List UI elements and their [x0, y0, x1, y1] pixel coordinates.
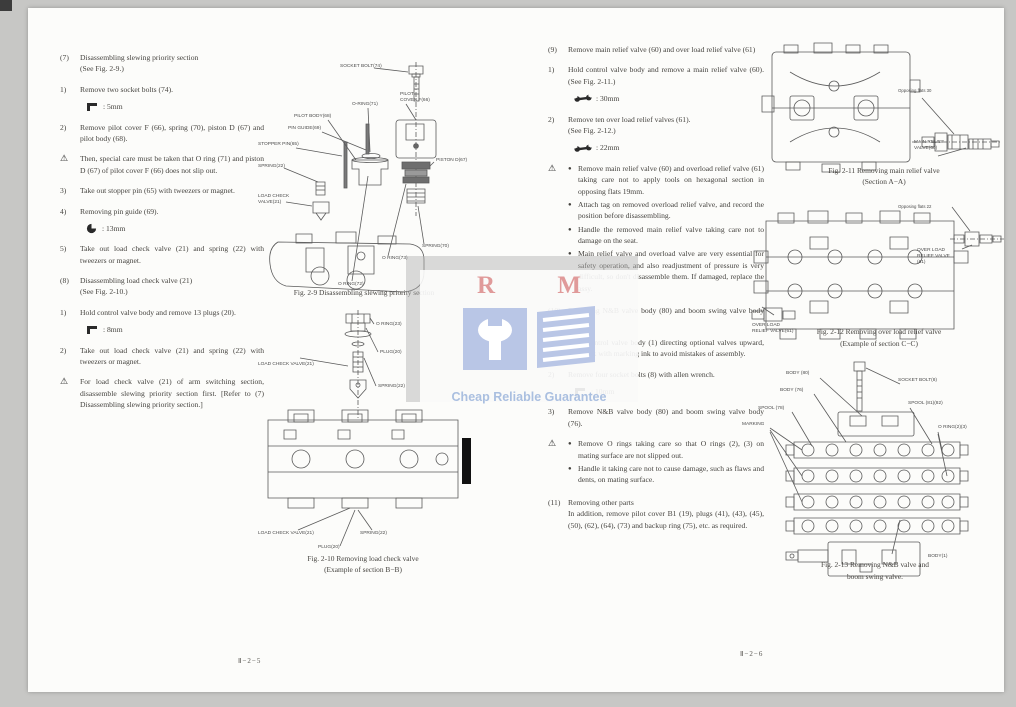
step-item: 2)Remove ten over load relief valves (61…: [548, 114, 764, 137]
tool-size: : 30mm: [596, 93, 764, 104]
item-text: Take out load check valve (21) and sprin…: [80, 345, 264, 368]
manual-page-spread: (7)Disassembling slewing priority sectio…: [28, 8, 1004, 692]
part-label: BODY (76): [780, 388, 803, 394]
item-text: Removing pin guide (69).: [80, 206, 264, 217]
item-number: 1): [60, 84, 80, 95]
page-number-left: Ⅱ−2−5: [238, 657, 261, 665]
part-label: Opposing flats 30: [898, 88, 931, 93]
spanner-icon: [574, 94, 592, 103]
item-text: Remove N&B valve body (80) and boom swin…: [568, 406, 764, 429]
step-item: 1)Remove two socket bolts (74).: [60, 84, 264, 95]
warning-icon: ⚠: [60, 153, 80, 176]
step-item: 4)Removing pin guide (69).: [60, 206, 264, 217]
warning-bullet-list: ●Remove O rings taking care so that O ri…: [568, 438, 764, 488]
part-label: O RING(72): [338, 282, 364, 288]
figure-caption: Fig. 2-10 Removing load check valve: [254, 554, 472, 563]
bullet-dot: ●: [568, 224, 578, 247]
bullet-dot: ●: [568, 163, 578, 197]
bullet-item: ●Attach tag on removed overload relief v…: [568, 199, 764, 222]
item-text: Hold control valve body and remove 13 pl…: [80, 307, 264, 318]
step-item: (11)Removing other parts In addition, re…: [548, 497, 764, 531]
figure-caption: Fig. 2-13 Removing N&B valve and: [742, 560, 1008, 569]
item-number: 5): [60, 243, 80, 266]
warning-note: ⚠Then, special care must be taken that O…: [60, 153, 264, 176]
watermark-tagline: Cheap Reliable Guarantee: [420, 390, 638, 404]
item-text: Disassembling slewing priority section (…: [80, 52, 264, 75]
watermark-box: R M Cheap Reliable G: [420, 270, 638, 402]
step-item: 5)Take out load check valve (21) and spr…: [60, 243, 264, 266]
step-item: (9)Remove main relief valve (60) and ove…: [548, 44, 764, 55]
figure-caption: (Section A−A): [760, 177, 1008, 186]
warning-text: For load check valve (21) of arm switchi…: [80, 376, 264, 410]
step-item: 2)Take out load check valve (21) and spr…: [60, 345, 264, 368]
bullet-text: Remove O rings taking care so that O rin…: [578, 438, 764, 461]
figure-caption: (Example of section C−C): [750, 339, 1008, 348]
part-label: SOCKET BOLT(74): [340, 64, 382, 70]
part-label: PILOT BODY(68): [294, 114, 331, 120]
bullet-item: ●Remove O rings taking care so that O ri…: [568, 438, 764, 461]
step-item: 1)Hold control valve body and remove 13 …: [60, 307, 264, 318]
item-number: (7): [60, 52, 80, 75]
item-number: 3): [60, 185, 80, 196]
item-text: Remove main relief valve (60) and over l…: [568, 44, 764, 55]
tool-size: : 13mm: [102, 223, 264, 234]
part-label: SPRING(22): [378, 384, 405, 390]
bullet-text: Remove main relief valve (60) and overlo…: [578, 163, 764, 197]
part-label: LOAD CHECK VALVE(21): [258, 194, 289, 206]
tool-size-line: : 8mm: [86, 324, 264, 335]
part-label: Opposing flats 22: [898, 204, 931, 209]
warning-note: ⚠For load check valve (21) of arm switch…: [60, 376, 264, 410]
part-label: MARKING: [742, 422, 764, 428]
part-label: O-RING(71): [352, 102, 378, 108]
part-label: SPOOL (78): [758, 406, 784, 412]
figure-2-13: BODY (80) BODY (76) SPOOL (78) SOCKET BO…: [742, 358, 1008, 590]
part-label: PISTON D(67): [436, 158, 467, 164]
bullet-item: ●Handle it taking care not to cause dama…: [568, 463, 764, 486]
part-label: PILOT COVER F(66): [400, 92, 430, 104]
item-number: 4): [60, 206, 80, 217]
item-text: Remove pilot cover F (66), spring (70), …: [80, 122, 264, 145]
bullet-text: Handle it taking care not to cause damag…: [578, 463, 764, 486]
bullet-dot: ●: [568, 463, 578, 486]
bullet-dot: ●: [568, 438, 578, 461]
item-number: 1): [60, 307, 80, 318]
part-label: LOAD CHECK VALVE(21): [258, 362, 314, 368]
figure-caption: Fig. 2-12 Removing over load relief valv…: [750, 327, 1008, 336]
item-text: Remove two socket bolts (74).: [80, 84, 264, 95]
part-label: PLUG(20): [380, 350, 402, 356]
tool-size-line: : 22mm: [574, 142, 764, 153]
step-item: (7)Disassembling slewing priority sectio…: [60, 52, 264, 75]
part-label: O RING(23): [376, 322, 402, 328]
tool-size-line: : 13mm: [86, 223, 264, 234]
bullet-text: Attach tag on removed overload relief va…: [578, 199, 764, 222]
step-item: 3)Remove N&B valve body (80) and boom sw…: [548, 406, 764, 429]
item-text: Hold control valve body and remove a mai…: [568, 64, 764, 87]
page-number-right: Ⅱ−2−6: [740, 650, 763, 658]
watermark-initials: R M: [420, 272, 638, 300]
figure-caption: boom swing valve.: [742, 572, 1008, 581]
part-label: SPRING(70): [422, 244, 449, 250]
figure-2-12: Opposing flats 22 OVER LOAD RELIEF VALVE…: [750, 193, 1008, 361]
bullet-item: ●Handle the removed main relief valve ta…: [568, 224, 764, 247]
part-label: BODY(1): [928, 554, 947, 560]
figure-caption: Fig. 2-11 Removing main relief valve: [760, 166, 1008, 175]
socket-icon: [86, 223, 98, 234]
part-label: SPOOL (81)(82): [908, 401, 943, 407]
step-item: 2)Remove pilot cover F (66), spring (70)…: [60, 122, 264, 145]
tool-size: : 8mm: [103, 324, 264, 335]
item-number: (11): [548, 497, 568, 531]
warning-icon: ⚠: [60, 376, 80, 410]
item-text: Remove ten over load relief valves (61).…: [568, 114, 764, 137]
item-text: Disassembling load check valve (21) (See…: [80, 275, 264, 298]
left-text-column: (7)Disassembling slewing priority sectio…: [60, 52, 264, 420]
item-number: 3): [548, 406, 568, 429]
part-label: SPRING(22): [258, 164, 285, 170]
tool-size: : 5mm: [103, 101, 264, 112]
revision-mark-bar: [462, 438, 471, 484]
part-label: O RING(73): [382, 256, 408, 262]
step-item: 1)Hold control valve body and remove a m…: [548, 64, 764, 87]
figure-caption: (Example of section B−B): [254, 565, 472, 574]
item-number: 1): [548, 64, 568, 87]
warning-note: ⚠ ●Remove O rings taking care so that O …: [548, 438, 764, 488]
tool-size-line: : 5mm: [86, 101, 264, 112]
scan-corner-artifact: [0, 0, 12, 11]
step-item: (8)Disassembling load check valve (21) (…: [60, 275, 264, 298]
hex-key-icon: [86, 324, 99, 335]
part-label: O RING(2)(3): [938, 425, 967, 431]
part-label: SPRING(22): [360, 531, 387, 537]
tool-size: : 22mm: [596, 142, 764, 153]
part-label: BODY (80): [786, 371, 809, 377]
tool-size-line: : 30mm: [574, 93, 764, 104]
part-label: OVER LOAD RELIEF VALVE (61): [917, 248, 950, 265]
item-text: Removing other parts In addition, remove…: [568, 497, 764, 531]
item-number: 2): [60, 122, 80, 145]
item-number: 2): [548, 114, 568, 137]
spanner-icon: [574, 144, 592, 153]
part-label: LOAD CHECK VALVE(21): [258, 531, 314, 537]
part-label: PIN GUIDE(69): [288, 126, 321, 132]
figure-2-11: Opposing flats 30 MAIN RELIEF VALVE(60) …: [760, 40, 1008, 192]
warning-text: Then, special care must be taken that O …: [80, 153, 264, 176]
part-label: MAIN RELIEF VALVE(60): [914, 140, 944, 152]
part-label: SOCKET BOLT(8): [898, 378, 937, 384]
item-number: (8): [60, 275, 80, 298]
item-text: Take out stopper pin (65) with tweezers …: [80, 185, 264, 196]
bullet-text: Handle the removed main relief valve tak…: [578, 224, 764, 247]
item-number: 2): [60, 345, 80, 368]
watermark: R M Cheap Reliable G: [406, 256, 638, 402]
watermark-logo-icon: [459, 304, 599, 381]
bullet-item: ●Remove main relief valve (60) and overl…: [568, 163, 764, 197]
item-number: (9): [548, 44, 568, 55]
warning-icon: ⚠: [548, 438, 568, 488]
step-item: 3)Take out stopper pin (65) with tweezer…: [60, 185, 264, 196]
bullet-dot: ●: [568, 199, 578, 222]
part-label: PLUG(20): [318, 545, 340, 551]
item-text: Take out load check valve (21) and sprin…: [80, 243, 264, 266]
part-label: STOPPER PIN(65): [258, 142, 299, 148]
hex-key-icon: [86, 101, 99, 112]
